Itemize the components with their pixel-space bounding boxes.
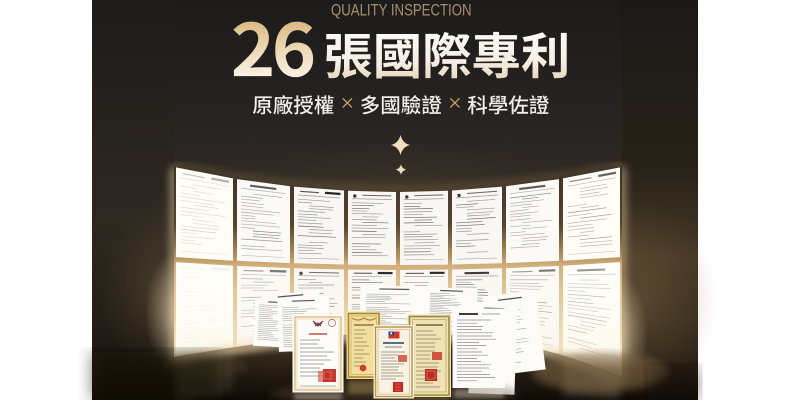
svg-text:QUALITY INSPECTION: QUALITY INSPECTION xyxy=(331,2,472,20)
